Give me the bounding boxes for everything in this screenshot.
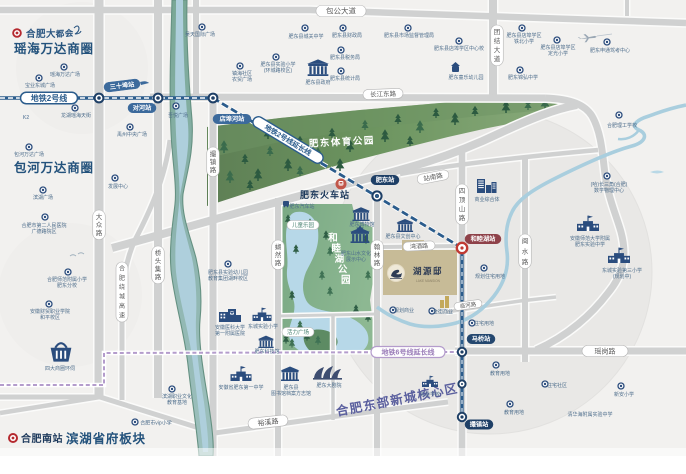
svg-text:园: 园 [341, 275, 351, 286]
svg-text:肥东锦弘中学: 肥东锦弘中学 [508, 74, 538, 81]
svg-text:合肥市vip小学: 合肥市vip小学 [140, 420, 171, 427]
svg-text:儿童乐园: 儿童乐园 [292, 221, 315, 229]
svg-text:肥东县市场监督管理局: 肥东县市场监督管理局 [384, 32, 434, 39]
svg-text:翰: 翰 [374, 242, 381, 251]
svg-text:滨湖省府板块: 滨湖省府板块 [66, 431, 146, 446]
svg-text:宝业东城广场: 宝业东城广场 [25, 82, 55, 89]
svg-text:瑶海万达广场: 瑶海万达广场 [50, 71, 80, 78]
svg-text:包公大道: 包公大道 [326, 6, 356, 16]
svg-text:数学物理中心: 数学物理中心 [594, 187, 624, 194]
svg-text:对河站: 对河站 [133, 104, 152, 112]
svg-text:(环城路校区): (环城路校区) [264, 67, 293, 74]
svg-text:图书馆档案方志馆: 图书馆档案方志馆 [271, 390, 311, 397]
svg-text:路: 路 [522, 257, 529, 266]
svg-text:包河万达广场: 包河万达广场 [14, 151, 44, 158]
svg-text:安徽财贸职业学院: 安徽财贸职业学院 [30, 308, 70, 315]
svg-text:肥东县店埠学区中心校: 肥东县店埠学区中心校 [434, 45, 484, 52]
svg-text:包河万达商圈: 包河万达商圈 [13, 160, 94, 175]
svg-text:蝴: 蝴 [275, 242, 282, 251]
svg-text:K2: K2 [23, 115, 30, 121]
svg-text:众: 众 [96, 221, 103, 229]
svg-text:实验学校: 实验学校 [420, 391, 440, 398]
svg-text:路: 路 [155, 272, 162, 281]
svg-text:瑶海万达商圈: 瑶海万达商圈 [14, 41, 94, 56]
svg-text:东城实验第三小学: 东城实验第三小学 [602, 267, 642, 274]
svg-text:肥东县统计局: 肥东县统计局 [330, 75, 360, 82]
svg-text:教育用地: 教育用地 [490, 370, 510, 377]
svg-text:肥东县财政局: 肥东县财政局 [332, 32, 362, 39]
svg-text:商业综合体: 商业综合体 [474, 196, 499, 203]
svg-text:瑶岗路: 瑶岗路 [595, 347, 616, 356]
svg-text:(哈)长三角(合肥): (哈)长三角(合肥) [591, 181, 628, 188]
svg-text:合肥理工学校: 合肥理工学校 [607, 122, 637, 129]
svg-text:镇海社区: 镇海社区 [232, 70, 252, 77]
svg-text:和: 和 [327, 232, 338, 244]
svg-text:安徽省肥东第一中学: 安徽省肥东第一中学 [218, 384, 263, 391]
svg-text:肥东县城关中学: 肥东县城关中学 [288, 33, 323, 40]
svg-text:规划住宅用地: 规划住宅用地 [475, 273, 505, 280]
svg-text:集: 集 [155, 264, 162, 273]
svg-text:肥东博物馆: 肥东博物馆 [349, 221, 374, 228]
svg-text:新安小学: 新安小学 [614, 391, 634, 398]
svg-text:滨湖职业文化: 滨湖职业文化 [162, 393, 192, 400]
svg-text:地铁6号线延长线: 地铁6号线延长线 [382, 348, 435, 357]
svg-text:结: 结 [494, 36, 501, 45]
svg-text:速: 速 [119, 312, 125, 319]
svg-text:活力广场: 活力广场 [287, 328, 310, 336]
svg-text:肥东站: 肥东站 [376, 176, 395, 184]
svg-text:睦: 睦 [331, 243, 341, 255]
svg-text:山: 山 [459, 204, 466, 213]
svg-text:龙湖瑶海天街: 龙湖瑶海天街 [61, 112, 91, 119]
svg-text:肥东县实验幼儿园: 肥东县实验幼儿园 [208, 269, 248, 276]
svg-text:合: 合 [119, 264, 125, 272]
svg-text:镇: 镇 [210, 157, 217, 166]
svg-text:住宅社区: 住宅社区 [547, 382, 567, 389]
svg-text:肥东县店埠学区: 肥东县店埠学区 [540, 44, 575, 51]
svg-text:滨湖广场: 滨湖广场 [33, 194, 53, 201]
svg-text:安徽医科大学: 安徽医科大学 [215, 324, 245, 331]
svg-text:大: 大 [96, 212, 103, 221]
svg-text:肥东申通驾考中心: 肥东申通驾考中心 [590, 47, 630, 54]
svg-text:马桥站: 马桥站 [472, 335, 491, 343]
svg-text:清华海附属实验中学: 清华海附属实验中学 [567, 411, 612, 418]
svg-text:肥东大剧院: 肥东大剧院 [316, 382, 341, 389]
svg-text:和平校区: 和平校区 [40, 314, 60, 321]
svg-text:肥东实验中学: 肥东实验中学 [575, 241, 605, 248]
svg-text:住宅用地: 住宅用地 [474, 320, 494, 327]
svg-text:肥东县店埠学区: 肥东县店埠学区 [506, 32, 541, 39]
svg-text:路: 路 [275, 258, 282, 267]
svg-text:四大商圈环伺: 四大商圈环伺 [45, 365, 75, 372]
svg-text:第一附属医院: 第一附属医院 [215, 330, 245, 337]
svg-text:肥: 肥 [119, 275, 125, 282]
svg-text:和睦湖站: 和睦湖站 [470, 235, 497, 243]
svg-text:定光小学: 定光小学 [548, 50, 568, 57]
svg-text:地铁2号线: 地铁2号线 [31, 93, 67, 103]
svg-text:撮: 撮 [210, 149, 217, 158]
svg-text:顶: 顶 [459, 196, 466, 204]
svg-text:城: 城 [119, 294, 125, 301]
svg-text:教育集团湖畔校区: 教育集团湖畔校区 [208, 275, 248, 282]
svg-text:合肥市第二人民医院: 合肥市第二人民医院 [21, 222, 66, 229]
svg-text:肥东分校: 肥东分校 [57, 282, 77, 289]
svg-text:(规划中): (规划中) [613, 273, 632, 280]
svg-text:肥东科技馆: 肥东科技馆 [254, 348, 279, 355]
svg-text:高: 高 [119, 302, 125, 310]
svg-text:路: 路 [374, 258, 381, 267]
svg-text:广德路院区: 广德路院区 [31, 228, 56, 235]
svg-text:肥东童乐幼儿园: 肥东童乐幼儿园 [448, 74, 483, 81]
svg-text:肥东县实验小学: 肥东县实验小学 [260, 61, 295, 68]
svg-text:教育用地: 教育用地 [504, 409, 524, 416]
svg-text:闽: 闽 [522, 237, 529, 245]
svg-text:铁北小学: 铁北小学 [514, 38, 534, 45]
svg-text:肥东县文创中心: 肥东县文创中心 [385, 233, 420, 240]
svg-text:规划商业: 规划商业 [394, 307, 414, 314]
svg-text:LAKE MANSION: LAKE MANSION [416, 279, 441, 283]
svg-text:合肥师范附属小学: 合肥师范附属小学 [47, 276, 87, 283]
svg-text:安徽师范大学附属: 安徽师范大学附属 [570, 235, 610, 242]
svg-text:路: 路 [459, 213, 466, 222]
svg-text:肥东县: 肥东县 [283, 384, 298, 391]
svg-text:发展中心: 发展中心 [108, 183, 128, 190]
svg-text:合肥大: 合肥大 [26, 28, 56, 40]
svg-text:肥东县税务局: 肥东县税务局 [330, 54, 360, 61]
svg-text:肥东汽车站: 肥东汽车站 [289, 203, 314, 210]
svg-text:农贸广场: 农贸广场 [232, 76, 252, 83]
svg-text:桥: 桥 [155, 248, 162, 257]
svg-text:吾悦广场: 吾悦广场 [168, 112, 188, 119]
svg-text:禹州中央广场: 禹州中央广场 [117, 131, 147, 138]
svg-text:吴天国际广场: 吴天国际广场 [185, 31, 215, 38]
svg-text:东城实验小学: 东城实验小学 [248, 323, 278, 330]
svg-text:林: 林 [374, 250, 381, 259]
svg-text:路: 路 [96, 228, 103, 237]
svg-text:湖源邸: 湖源邸 [413, 266, 443, 276]
svg-text:展示中心: 展示中心 [346, 256, 366, 263]
svg-text:然: 然 [275, 250, 282, 259]
svg-text:大: 大 [494, 45, 501, 54]
svg-text:教育基地: 教育基地 [167, 399, 187, 406]
svg-text:头: 头 [155, 256, 162, 265]
svg-text:水: 水 [522, 246, 529, 255]
svg-text:合肥南站: 合肥南站 [20, 432, 63, 445]
svg-text:四: 四 [459, 187, 466, 195]
svg-text:肥东县政府: 肥东县政府 [305, 79, 330, 86]
svg-text:金街商业: 金街商业 [433, 309, 453, 316]
svg-text:公: 公 [338, 265, 348, 276]
svg-text:团: 团 [494, 28, 501, 36]
svg-text:店埠河站: 店埠河站 [219, 115, 246, 123]
svg-text:都会: 都会 [54, 28, 74, 39]
svg-text:道: 道 [494, 54, 501, 63]
svg-text:路: 路 [210, 165, 217, 174]
svg-text:肥东山水文化: 肥东山水文化 [341, 250, 371, 257]
svg-text:肥东火车站: 肥东火车站 [300, 189, 350, 200]
svg-text:绕: 绕 [119, 283, 125, 291]
svg-text:撮镇站: 撮镇站 [470, 421, 489, 429]
